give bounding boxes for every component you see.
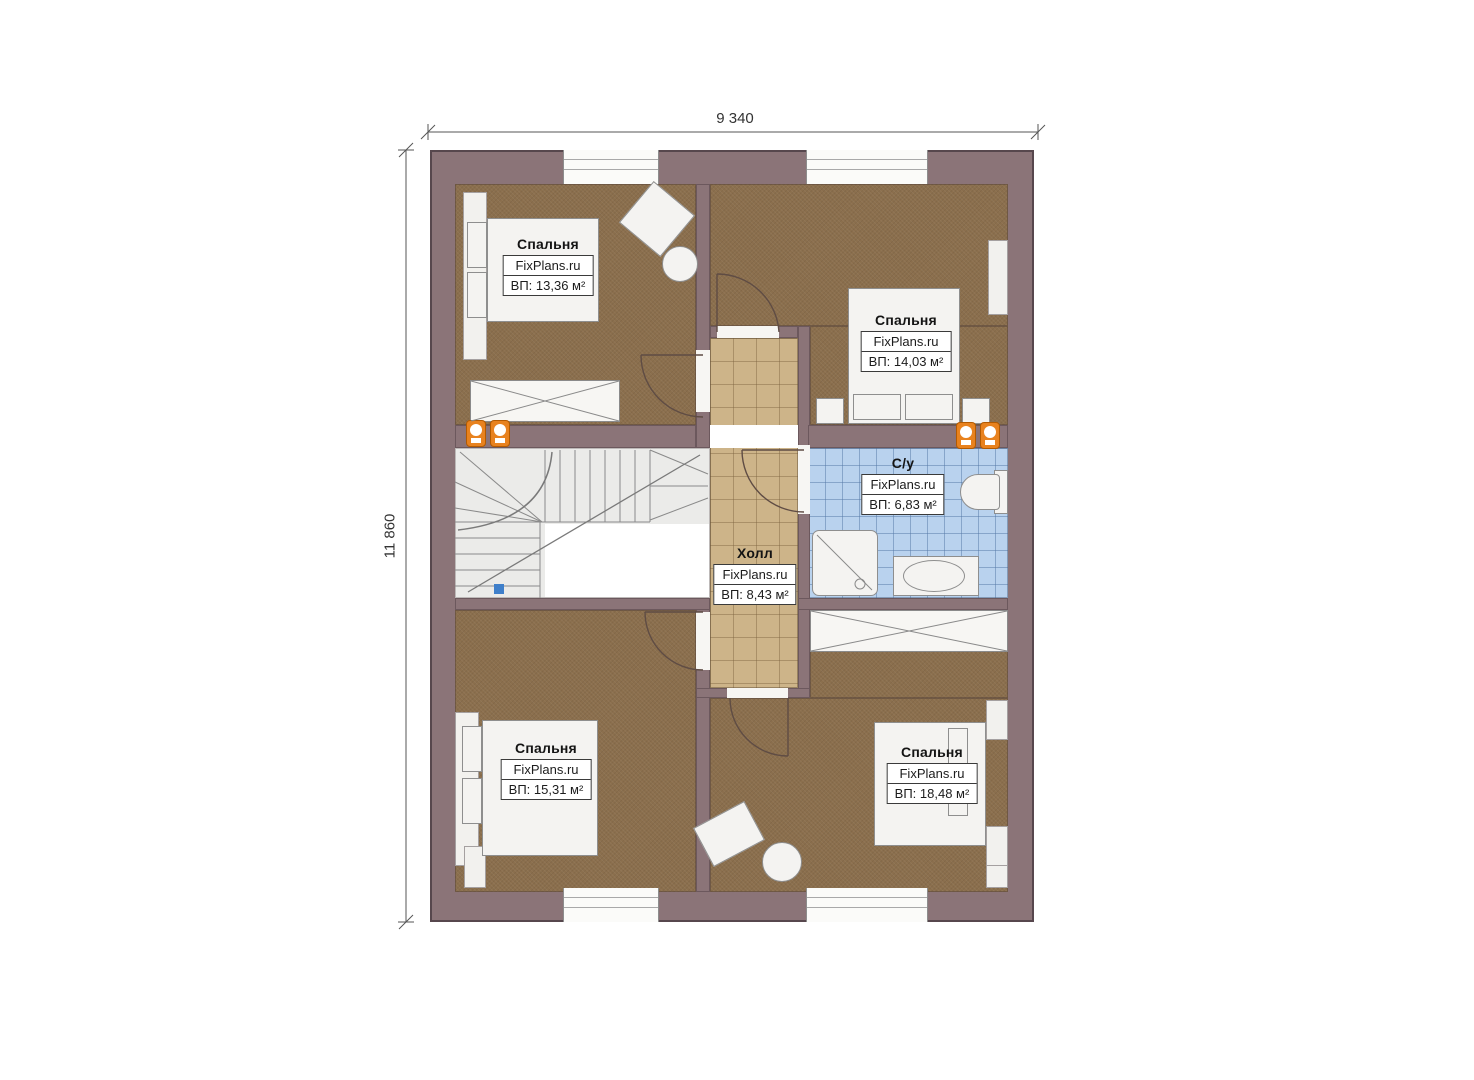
dimension-height-label: 11 860 <box>382 514 399 559</box>
radiator-icon <box>466 420 486 447</box>
watermark-text: FixPlans.ru <box>502 760 591 779</box>
room-info-box: FixPlans.ru ВП: 13,36 м² <box>503 255 594 296</box>
room-area: ВП: 13,36 м² <box>504 275 593 295</box>
nightstand-bottom-right-lower <box>986 826 1008 866</box>
nightstand-top-right-left <box>816 398 844 424</box>
radiator-icon <box>956 422 976 449</box>
room-info-box: FixPlans.ru ВП: 6,83 м² <box>861 474 944 515</box>
door-opening-bedroom-top-right <box>717 326 779 338</box>
dimension-width-label: 9 340 <box>716 110 754 127</box>
watermark-text: FixPlans.ru <box>714 565 795 584</box>
room-area: ВП: 18,48 м² <box>888 783 977 803</box>
wardrobe-top-left <box>470 380 620 422</box>
bed-bottom-left-pillow-1 <box>462 726 482 772</box>
stool-bottom-right <box>762 842 802 882</box>
room-label-bathroom: С/у FixPlans.ru ВП: 6,83 м² <box>861 455 944 515</box>
table-top-left <box>662 246 698 282</box>
window-top-left <box>563 150 659 184</box>
radiator-icon <box>980 422 1000 449</box>
window-bottom-right <box>806 888 928 922</box>
room-name: Спальня <box>503 236 594 252</box>
bed-bottom-left-pillow-2 <box>462 778 482 824</box>
room-info-box: FixPlans.ru ВП: 18,48 м² <box>887 763 978 804</box>
shower-tray <box>812 530 878 596</box>
nightstand-bottom-right-upper <box>986 700 1008 740</box>
room-label-bedroom-bottom-right: Спальня FixPlans.ru ВП: 18,48 м² <box>887 744 978 804</box>
niche-top-right <box>988 240 1008 315</box>
room-name: С/у <box>861 455 944 471</box>
hall-floor <box>710 338 798 688</box>
room-name: Спальня <box>501 740 592 756</box>
door-opening-bathroom <box>798 445 810 514</box>
watermark-text: FixPlans.ru <box>862 475 943 494</box>
bed-top-left-pillow-2 <box>467 272 487 318</box>
window-top-right <box>806 150 928 184</box>
wall-bathroom-bottom <box>798 598 1008 610</box>
room-label-bedroom-top-left: Спальня FixPlans.ru ВП: 13,36 м² <box>503 236 594 296</box>
room-label-hall: Холл FixPlans.ru ВП: 8,43 м² <box>713 545 796 605</box>
room-area: ВП: 6,83 м² <box>862 494 943 514</box>
wall-stairs-bottom <box>455 598 710 610</box>
bed-top-right-pillow-2 <box>905 394 953 420</box>
room-label-bedroom-top-right: Спальня FixPlans.ru ВП: 14,03 м² <box>861 312 952 372</box>
door-opening-bedroom-bottom-right <box>727 688 788 698</box>
watermark-text: FixPlans.ru <box>888 764 977 783</box>
wall-bathroom-top <box>808 425 1008 448</box>
room-area: ВП: 15,31 м² <box>502 779 591 799</box>
toilet-bowl <box>960 474 1000 510</box>
stair-landing <box>710 425 798 448</box>
nightstand-top-right-right <box>962 398 990 424</box>
staircase-floor <box>455 448 710 598</box>
sink-basin <box>903 560 965 592</box>
room-name: Спальня <box>861 312 952 328</box>
room-area: ВП: 8,43 м² <box>714 584 795 604</box>
room-label-bedroom-bottom-left: Спальня FixPlans.ru ВП: 15,31 м² <box>501 740 592 800</box>
radiator-icon <box>490 420 510 447</box>
room-area: ВП: 14,03 м² <box>862 351 951 371</box>
bed-top-right-pillow-1 <box>853 394 901 420</box>
watermark-text: FixPlans.ru <box>862 332 951 351</box>
watermark-text: FixPlans.ru <box>504 256 593 275</box>
wardrobe-bottom-right <box>810 610 1008 652</box>
bed-top-left-pillow-1 <box>467 222 487 268</box>
room-info-box: FixPlans.ru ВП: 14,03 м² <box>861 331 952 372</box>
floor-plan-canvas: 9 340 11 860 <box>0 0 1474 1080</box>
room-info-box: FixPlans.ru ВП: 8,43 м² <box>713 564 796 605</box>
window-bottom-left <box>563 888 659 922</box>
room-info-box: FixPlans.ru ВП: 15,31 м² <box>501 759 592 800</box>
room-name: Холл <box>713 545 796 561</box>
room-name: Спальня <box>887 744 978 760</box>
door-opening-bedroom-bottom-left <box>696 612 710 670</box>
door-opening-bedroom-top-left <box>696 350 710 412</box>
